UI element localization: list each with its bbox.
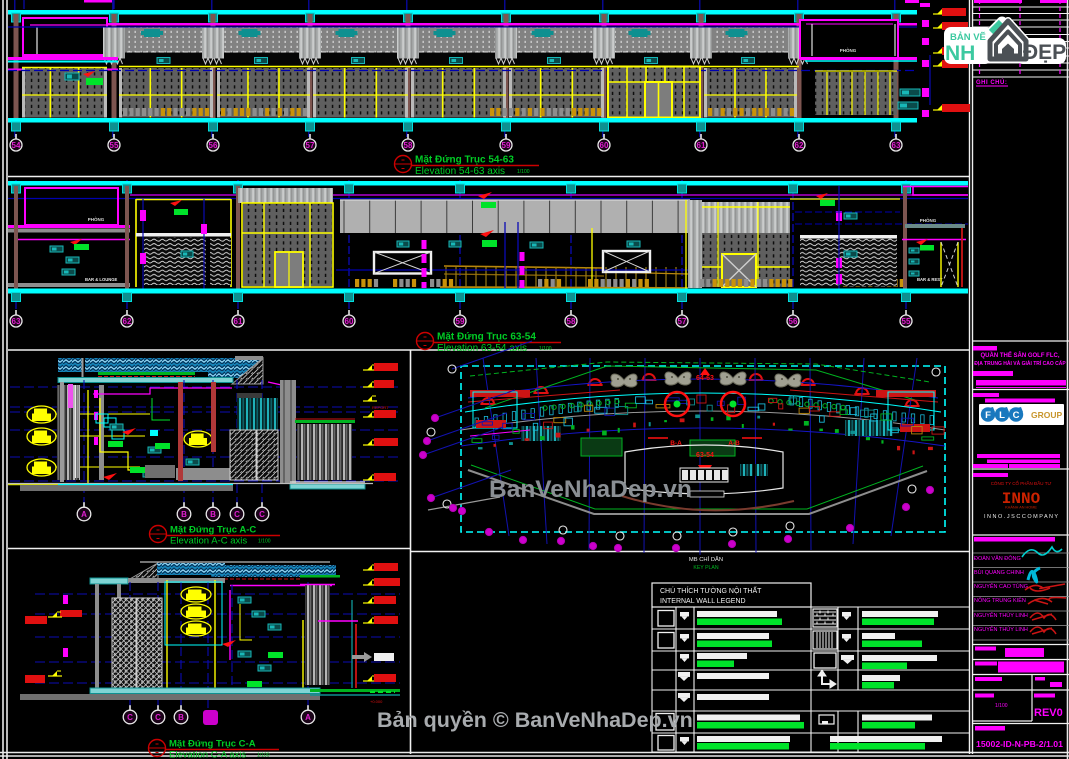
- svg-text:KHÁNH AN HOME: KHÁNH AN HOME: [1005, 506, 1037, 510]
- svg-text:GROUP: GROUP: [1031, 410, 1063, 420]
- svg-text:I N N O . J S C C O M P A N: I N N O . J S C C O M P A N Y: [984, 514, 1058, 520]
- svg-text:BAR & REST: BAR & REST: [917, 277, 943, 282]
- svg-text:REPORT: REPORT: [372, 405, 389, 410]
- svg-text:B: B: [181, 510, 187, 519]
- svg-text:62: 62: [795, 141, 804, 150]
- svg-text:MB CHỈ DẪN: MB CHỈ DẪN: [689, 556, 723, 563]
- svg-text:Bản quyền © BanVeNhaDep.vn: Bản quyền © BanVeNhaDep.vn: [377, 708, 693, 732]
- svg-text:1/100: 1/100: [995, 703, 1008, 709]
- svg-text:PHÒNG: PHÒNG: [920, 216, 937, 223]
- svg-text:63: 63: [892, 141, 901, 150]
- svg-text:PHÒNG: PHÒNG: [840, 46, 857, 53]
- svg-text:60: 60: [345, 317, 354, 326]
- svg-text:BÙI QUANG CHINH: BÙI QUANG CHINH: [974, 569, 1024, 576]
- svg-text:59: 59: [502, 141, 511, 150]
- svg-text:NGUYỄN THÙY LINH: NGUYỄN THÙY LINH: [974, 612, 1028, 619]
- svg-text:GHI CHÚ:: GHI CHÚ:: [976, 79, 1007, 86]
- svg-text:63: 63: [12, 317, 21, 326]
- svg-text:58: 58: [404, 141, 413, 150]
- svg-text:Mặt Đứng Trục C-A: Mặt Đứng Trục C-A: [169, 739, 256, 750]
- svg-text:60: 60: [600, 141, 609, 150]
- svg-text:REV0: REV0: [1034, 707, 1063, 719]
- svg-text:Elevation A-C axis: Elevation A-C axis: [170, 536, 247, 547]
- svg-text:56: 56: [209, 141, 218, 150]
- svg-text:57: 57: [678, 317, 687, 326]
- svg-text:C: C: [234, 510, 240, 519]
- svg-text:62: 62: [123, 317, 132, 326]
- svg-text:56: 56: [789, 317, 798, 326]
- svg-text:NH: NH: [945, 42, 975, 65]
- svg-text:ĐỊA TRUNG HẢI VÀ GIẢI TRÍ CAO: ĐỊA TRUNG HẢI VÀ GIẢI TRÍ CAO CẤP: [974, 359, 1066, 367]
- svg-text:A: A: [81, 510, 87, 519]
- svg-text:1/100: 1/100: [257, 753, 270, 759]
- svg-text:Elevation 54-63 axis: Elevation 54-63 axis: [415, 166, 505, 177]
- svg-text:61: 61: [697, 141, 706, 150]
- svg-text:55: 55: [110, 141, 119, 150]
- svg-text:NGUYỄN CAO TÙNG: NGUYỄN CAO TÙNG: [974, 583, 1028, 590]
- svg-text:64-63: 64-63: [696, 375, 714, 382]
- svg-text:CÔNG TY CỔ PHẦN ĐẦU TƯ: CÔNG TY CỔ PHẦN ĐẦU TƯ: [991, 480, 1052, 486]
- svg-text:1/100: 1/100: [517, 169, 530, 175]
- svg-text:1/100: 1/100: [539, 346, 552, 352]
- svg-text:Elevation C-A axis: Elevation C-A axis: [169, 750, 246, 759]
- svg-text:NÔNG TRUNG KIÊN: NÔNG TRUNG KIÊN: [974, 596, 1026, 604]
- svg-text:57: 57: [306, 141, 315, 150]
- svg-text:1/100: 1/100: [258, 539, 271, 545]
- svg-text:KEY PLAN: KEY PLAN: [693, 565, 719, 571]
- svg-text:ĐOÀN VĂN ĐÔNG: ĐOÀN VĂN ĐÔNG: [974, 555, 1021, 562]
- svg-text:+0.000: +0.000: [370, 699, 383, 704]
- svg-text:59: 59: [456, 317, 465, 326]
- svg-text:Mặt Đứng Trục 54-63: Mặt Đứng Trục 54-63: [415, 155, 514, 166]
- svg-text:55: 55: [902, 317, 911, 326]
- svg-text:BAR & LOUNGE: BAR & LOUNGE: [85, 277, 118, 282]
- svg-text:Mặt Đứng Trục A-C: Mặt Đứng Trục A-C: [170, 525, 256, 536]
- svg-text:PHÒNG: PHÒNG: [88, 215, 105, 222]
- svg-text:15002-ID-N-PB-2/1.01: 15002-ID-N-PB-2/1.01: [976, 739, 1063, 749]
- svg-text:61: 61: [234, 317, 243, 326]
- svg-text:C: C: [1013, 410, 1020, 421]
- svg-text:C: C: [259, 510, 265, 519]
- svg-text:QUẦN THỂ SÂN GOLF FLC,: QUẦN THỂ SÂN GOLF FLC,: [981, 352, 1060, 359]
- svg-text:54: 54: [12, 141, 21, 150]
- svg-text:58: 58: [567, 317, 576, 326]
- svg-text:NGUYỄN THÚY LINH: NGUYỄN THÚY LINH: [974, 626, 1028, 633]
- svg-text:L: L: [999, 410, 1005, 421]
- svg-text:Mặt Đứng Trục 63-54: Mặt Đứng Trục 63-54: [437, 332, 536, 343]
- svg-text:F: F: [985, 410, 991, 421]
- svg-text:63-54: 63-54: [696, 452, 714, 459]
- svg-text:Elevation 63-54 axis: Elevation 63-54 axis: [437, 343, 527, 354]
- svg-text:INTERNAL WALL LEGEND: INTERNAL WALL LEGEND: [660, 598, 746, 605]
- svg-text:B: B: [210, 510, 216, 519]
- svg-text:C: C: [155, 713, 161, 722]
- svg-text:C: C: [127, 713, 133, 722]
- svg-text:BanVeNhaDep.vn: BanVeNhaDep.vn: [489, 476, 692, 503]
- svg-text:ĐẸP: ĐẸP: [1023, 41, 1066, 64]
- svg-text:A: A: [305, 713, 311, 722]
- svg-text:B: B: [178, 713, 184, 722]
